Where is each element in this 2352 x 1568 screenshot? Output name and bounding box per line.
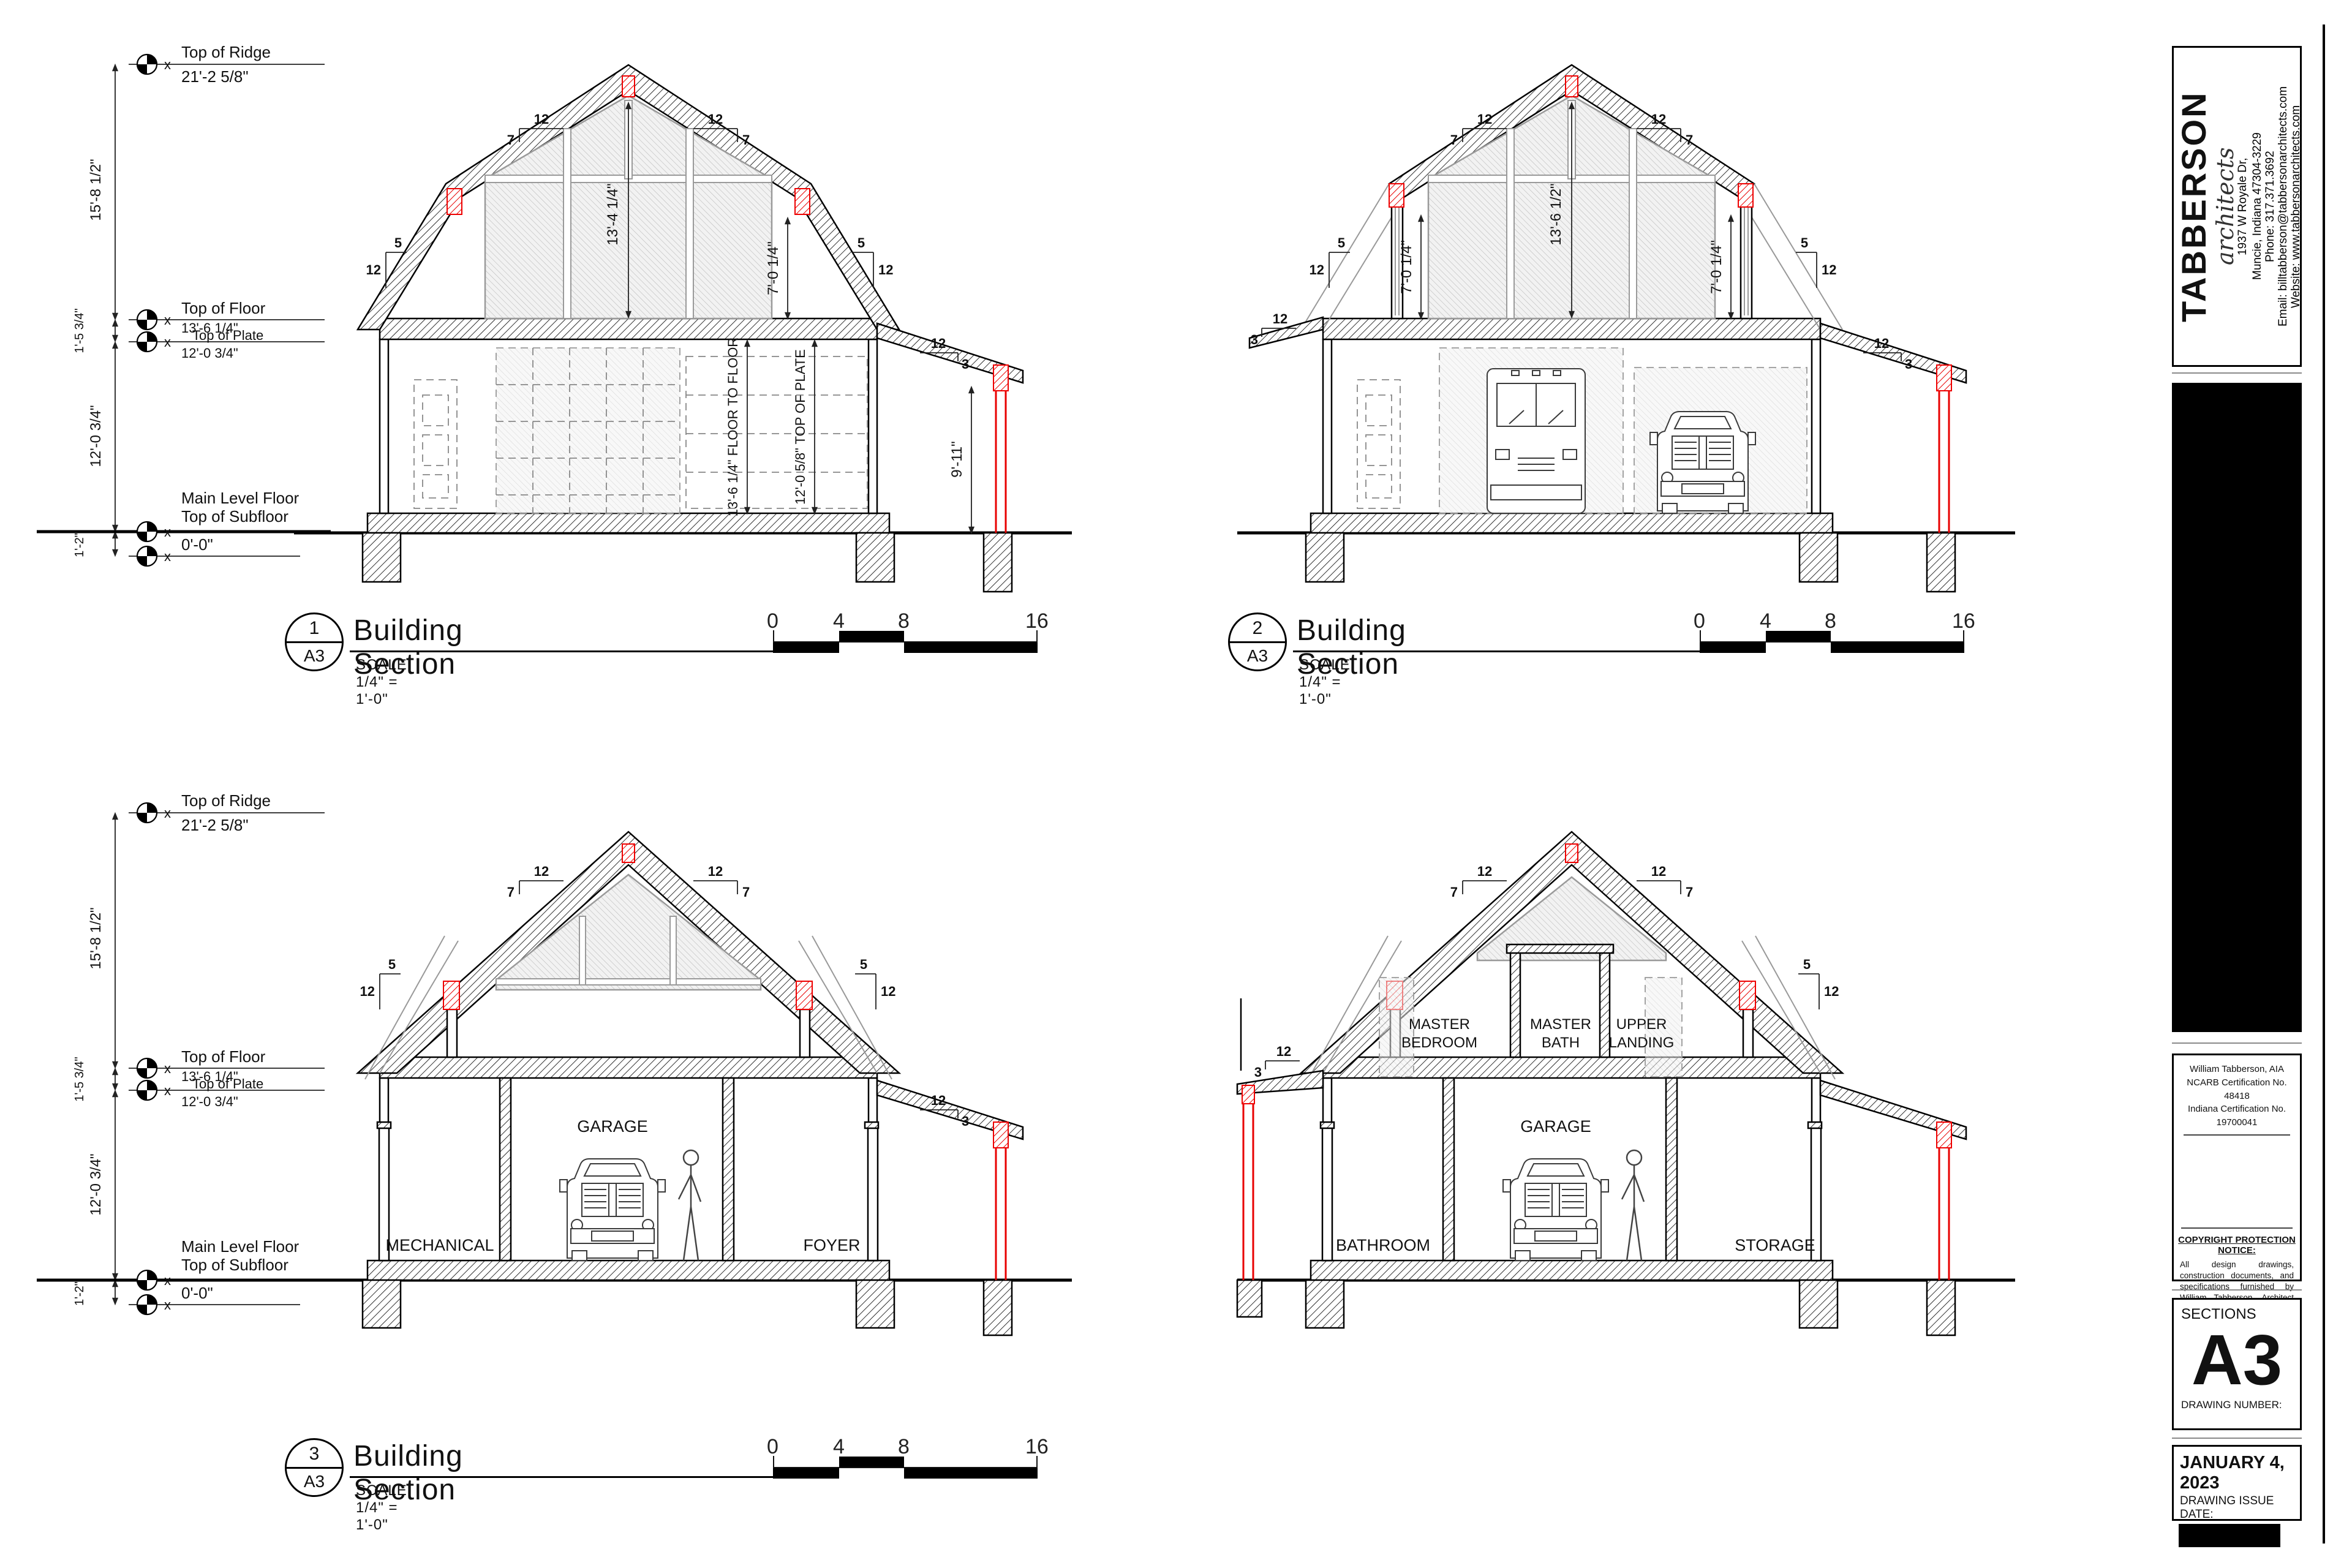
- svg-text:LANDING: LANDING: [1609, 1035, 1675, 1051]
- svg-text:12: 12: [1874, 336, 1889, 351]
- room-label-mechanical: MECHANICAL: [385, 1236, 494, 1254]
- suv-vehicle: [560, 1159, 665, 1261]
- section-3-drawing: MECHANICAL GARAGE FOYER 12 7 12 7 5 12 5…: [294, 796, 1072, 1415]
- svg-text:12: 12: [708, 864, 723, 879]
- garage-interior: [1357, 348, 1807, 513]
- svg-text:12: 12: [1651, 111, 1666, 127]
- svg-text:7: 7: [1450, 132, 1458, 148]
- project-image-block: [2172, 383, 2302, 1032]
- person-figure: [1622, 1150, 1644, 1261]
- top-of-plate-label: Top of Plate: [192, 328, 263, 343]
- svg-text:12: 12: [360, 984, 375, 999]
- knee-blocking-right: [1740, 981, 1755, 1009]
- top-of-plate-value: 12'-0 3/4": [181, 345, 238, 361]
- level-x-mark: x: [164, 57, 171, 72]
- knee-blocking-left: [1389, 184, 1404, 207]
- svg-text:12: 12: [1651, 864, 1666, 879]
- firm-name: TABBERSON: [2174, 48, 2212, 365]
- svg-text:5: 5: [1801, 235, 1808, 251]
- level-dim-string: x x x x x Top of Ridge 21'-2 5/8" Top of…: [37, 43, 331, 566]
- svg-text:7: 7: [742, 884, 750, 900]
- drawing-sheet: x x x x x Top of Ridge 21'-2 5/8" Top of…: [0, 0, 2352, 1568]
- room-label-foyer: FOYER: [803, 1236, 860, 1254]
- svg-text:12: 12: [1310, 262, 1324, 277]
- svg-text:7'-0 1/4": 7'-0 1/4": [1708, 240, 1725, 294]
- sheet-reference: A3: [287, 646, 342, 666]
- graphic-scale-bar-2: 0 4 8 16: [1700, 609, 1981, 671]
- svg-text:5: 5: [860, 957, 867, 972]
- room-label-master-bedroom: MASTER: [1409, 1016, 1470, 1033]
- svg-text:x: x: [164, 805, 171, 821]
- svg-text:7: 7: [1686, 884, 1693, 900]
- svg-text:BEDROOM: BEDROOM: [1401, 1035, 1477, 1051]
- knee-walls: [447, 1009, 810, 1057]
- floor-to-floor-dim: 13'-6 1/4" FLOOR TO FLOOR: [725, 337, 741, 516]
- svg-text:x: x: [164, 312, 171, 328]
- architect-name: William Tabberson, AIA: [2174, 1063, 2300, 1076]
- svg-text:Top of Floor: Top of Floor: [181, 1047, 266, 1066]
- svg-text:12: 12: [708, 111, 723, 127]
- bus-vehicle: [1487, 369, 1585, 513]
- issue-date-block: JANUARY 4, 2023 DRAWING ISSUE DATE:: [2172, 1445, 2302, 1521]
- svg-text:7: 7: [1686, 132, 1693, 148]
- svg-text:12'-0 3/4": 12'-0 3/4": [88, 1153, 104, 1215]
- certification-block: William Tabberson, AIA NCARB Certificati…: [2172, 1053, 2302, 1281]
- top-of-floor-label: Top of Floor: [181, 299, 266, 317]
- svg-text:7: 7: [742, 132, 750, 148]
- svg-text:5: 5: [858, 235, 865, 251]
- svg-text:x: x: [164, 334, 171, 350]
- main-level-value: 0'-0": [181, 535, 213, 554]
- graphic-scale-bar-1: 0 4 8 16: [773, 609, 1055, 671]
- drawing-number-label: DRAWING NUMBER:: [2174, 1398, 2300, 1411]
- svg-text:12: 12: [1824, 984, 1839, 999]
- svg-text:21'-2 5/8": 21'-2 5/8": [181, 816, 249, 834]
- svg-text:Main Level Floor: Main Level Floor: [181, 1237, 300, 1256]
- firm-email: Email: billtabberson@tabbersonarchitects…: [2277, 48, 2290, 365]
- copyright-heading: COPYRIGHT PROTECTION NOTICE:: [2174, 1235, 2300, 1256]
- suv-vehicle: [1503, 1159, 1608, 1261]
- svg-text:12: 12: [534, 111, 549, 127]
- firm-website: Website: www.tabbersonarchitects.com: [2290, 48, 2302, 365]
- svg-text:3: 3: [962, 356, 969, 372]
- dim-ridge: 15'-8 1/2": [88, 159, 104, 221]
- svg-text:BATH: BATH: [1542, 1035, 1580, 1051]
- detail-callout-bubble: 3 A3: [285, 1438, 344, 1497]
- detail-callout-bubble: 2 A3: [1228, 612, 1287, 671]
- room-label-bathroom: BATHROOM: [1336, 1236, 1430, 1254]
- svg-text:15'-8 1/2": 15'-8 1/2": [88, 907, 104, 969]
- firm-address-line2: Muncie, Indiana 47304-3229: [2251, 48, 2264, 365]
- firm-name-sub: architects: [2212, 48, 2236, 365]
- section-1-drawing: 13'-4 1/4" 7'-0 1/4" 13'-6 1/4" FLOOR TO…: [294, 37, 1072, 655]
- svg-text:12: 12: [534, 864, 549, 879]
- svg-text:Top of Subfloor: Top of Subfloor: [181, 1256, 288, 1274]
- person-figure: [679, 1150, 701, 1261]
- svg-text:12'-0 3/4": 12'-0 3/4": [181, 1094, 238, 1109]
- knee-height-dim: 7'-0 1/4": [765, 241, 782, 295]
- detail-callout-bubble: 1 A3: [285, 612, 344, 671]
- svg-text:7: 7: [1450, 884, 1458, 900]
- firm-address-line1: 1937 W Royale Dr,: [2236, 48, 2251, 365]
- dim-floor-plate: 1'-5 3/4": [73, 308, 86, 353]
- firm-title-block: TABBERSON architects 1937 W Royale Dr, M…: [2172, 46, 2302, 367]
- svg-text:5: 5: [1338, 235, 1345, 251]
- svg-text:Top of Ridge: Top of Ridge: [181, 791, 271, 810]
- knee-blocking-left: [443, 981, 459, 1009]
- knee-blocking-right: [1738, 184, 1753, 207]
- porch-post: [993, 1122, 1008, 1280]
- svg-text:12: 12: [1477, 111, 1492, 127]
- svg-text:0'-0": 0'-0": [181, 1284, 213, 1302]
- dim-plate-sub: 12'-0 3/4": [88, 405, 104, 467]
- top-of-ridge-value: 21'-2 5/8": [181, 67, 249, 86]
- ridge-blocking: [1566, 844, 1578, 862]
- section-2-drawing: 13'-6 1/2" 7'-0 1/4" 7'-0 1/4" 12 7 12 7…: [1237, 37, 2015, 655]
- dim-footing: 1'-2": [73, 533, 86, 557]
- svg-text:12: 12: [1477, 864, 1492, 879]
- svg-text:12: 12: [1273, 311, 1287, 326]
- svg-text:x: x: [164, 524, 171, 540]
- svg-text:5: 5: [388, 957, 396, 972]
- svg-text:7: 7: [507, 132, 514, 148]
- level-dim-string: x x x x x Top of Ridge 21'-2 5/8" Top of…: [37, 791, 331, 1314]
- attic-height-dim: 13'-4 1/4": [605, 183, 621, 245]
- elevation-levels-top: x x x x x Top of Ridge 21'-2 5/8" Top of…: [37, 24, 331, 674]
- main-level-label2: Top of Subfloor: [181, 507, 288, 526]
- svg-text:7'-0 1/4": 7'-0 1/4": [1398, 240, 1415, 294]
- firm-phone: Phone: 317.371.3692: [2264, 48, 2277, 365]
- svg-text:12: 12: [931, 336, 946, 351]
- porch-post-left: [1242, 1085, 1254, 1280]
- svg-text:3: 3: [1254, 1065, 1262, 1080]
- porch-post-right: [1937, 365, 1951, 533]
- svg-text:x: x: [164, 549, 171, 564]
- room-label-garage: GARAGE: [1520, 1117, 1591, 1136]
- post-height-dim: 9'-11": [949, 441, 965, 477]
- issue-date-label: DRAWING ISSUE DATE:: [2174, 1493, 2300, 1521]
- room-label-storage: STORAGE: [1735, 1236, 1815, 1254]
- porch-post: [993, 365, 1008, 533]
- issue-date: JANUARY 4, 2023: [2174, 1447, 2300, 1493]
- svg-text:x: x: [164, 1061, 171, 1076]
- room-label-master-bath: MASTER: [1530, 1016, 1591, 1033]
- main-level-label1: Main Level Floor: [181, 489, 300, 507]
- svg-text:12: 12: [1822, 262, 1836, 277]
- svg-text:Top of Plate: Top of Plate: [192, 1076, 263, 1091]
- svg-text:12: 12: [1276, 1044, 1291, 1059]
- knee-blocking-right: [796, 981, 812, 1009]
- building-section-1: 13'-4 1/4" 7'-0 1/4" 13'-6 1/4" FLOOR TO…: [294, 65, 1072, 592]
- svg-text:12: 12: [878, 262, 893, 277]
- ridge-blocking: [622, 76, 635, 97]
- svg-text:1'-2": 1'-2": [73, 1281, 86, 1306]
- building-section-3: MECHANICAL GARAGE FOYER 12 7 12 7 5 12 5…: [294, 832, 1072, 1335]
- ridge-blocking: [622, 844, 635, 862]
- porch-post-right: [1937, 1122, 1951, 1280]
- svg-text:x: x: [164, 1273, 171, 1288]
- ncarb-cert: NCARB Certification No. 48418: [2174, 1076, 2300, 1103]
- building-section-4: MASTER BEDROOM MASTER BATH UPPER LANDING…: [1237, 832, 2015, 1335]
- svg-text:x: x: [164, 1297, 171, 1313]
- svg-text:x: x: [164, 1083, 171, 1098]
- svg-text:5: 5: [1803, 957, 1811, 972]
- svg-text:1'-5 3/4": 1'-5 3/4": [73, 1057, 86, 1101]
- top-of-plate-dim: 12'-0 5/8" TOP OF PLATE: [793, 349, 808, 505]
- room-label-upper-landing: UPPER: [1616, 1016, 1667, 1033]
- elevation-levels-bottom: x x x x x Top of Ridge 21'-2 5/8" Top of…: [37, 773, 331, 1422]
- building-section-2: 13'-6 1/2" 7'-0 1/4" 7'-0 1/4" 12 7 12 7…: [1237, 65, 2015, 592]
- knee-blocking-right: [795, 189, 810, 214]
- graphic-scale-bar-3: 0 4 8 16: [773, 1435, 1055, 1496]
- svg-text:12: 12: [881, 984, 895, 999]
- svg-text:12: 12: [931, 1093, 946, 1108]
- section-number: 1: [287, 618, 342, 639]
- sheet-number: A3: [2174, 1323, 2300, 1398]
- sheet-edge-line: [2323, 24, 2325, 1543]
- top-of-ridge-label: Top of Ridge: [181, 43, 271, 61]
- svg-text:5: 5: [394, 235, 402, 251]
- sheet-number-block: SECTIONS A3 DRAWING NUMBER:: [2172, 1298, 2302, 1430]
- svg-text:3: 3: [1251, 332, 1258, 347]
- indiana-cert: Indiana Certification No. 19700041: [2174, 1102, 2300, 1129]
- section-scale-text: SCALE: 1/4" = 1'-0": [356, 657, 412, 708]
- redacted-bar: [2179, 1524, 2280, 1547]
- ridge-blocking: [1566, 76, 1578, 97]
- knee-blocking-left: [447, 189, 462, 214]
- attic-height-dim: 13'-6 1/2": [1548, 183, 1564, 245]
- room-label-garage: GARAGE: [577, 1117, 648, 1136]
- section-4-drawing: MASTER BEDROOM MASTER BATH UPPER LANDING…: [1237, 796, 2015, 1415]
- svg-text:3: 3: [1905, 356, 1912, 372]
- svg-text:7: 7: [507, 884, 514, 900]
- svg-text:12: 12: [366, 262, 381, 277]
- svg-text:3: 3: [962, 1114, 969, 1129]
